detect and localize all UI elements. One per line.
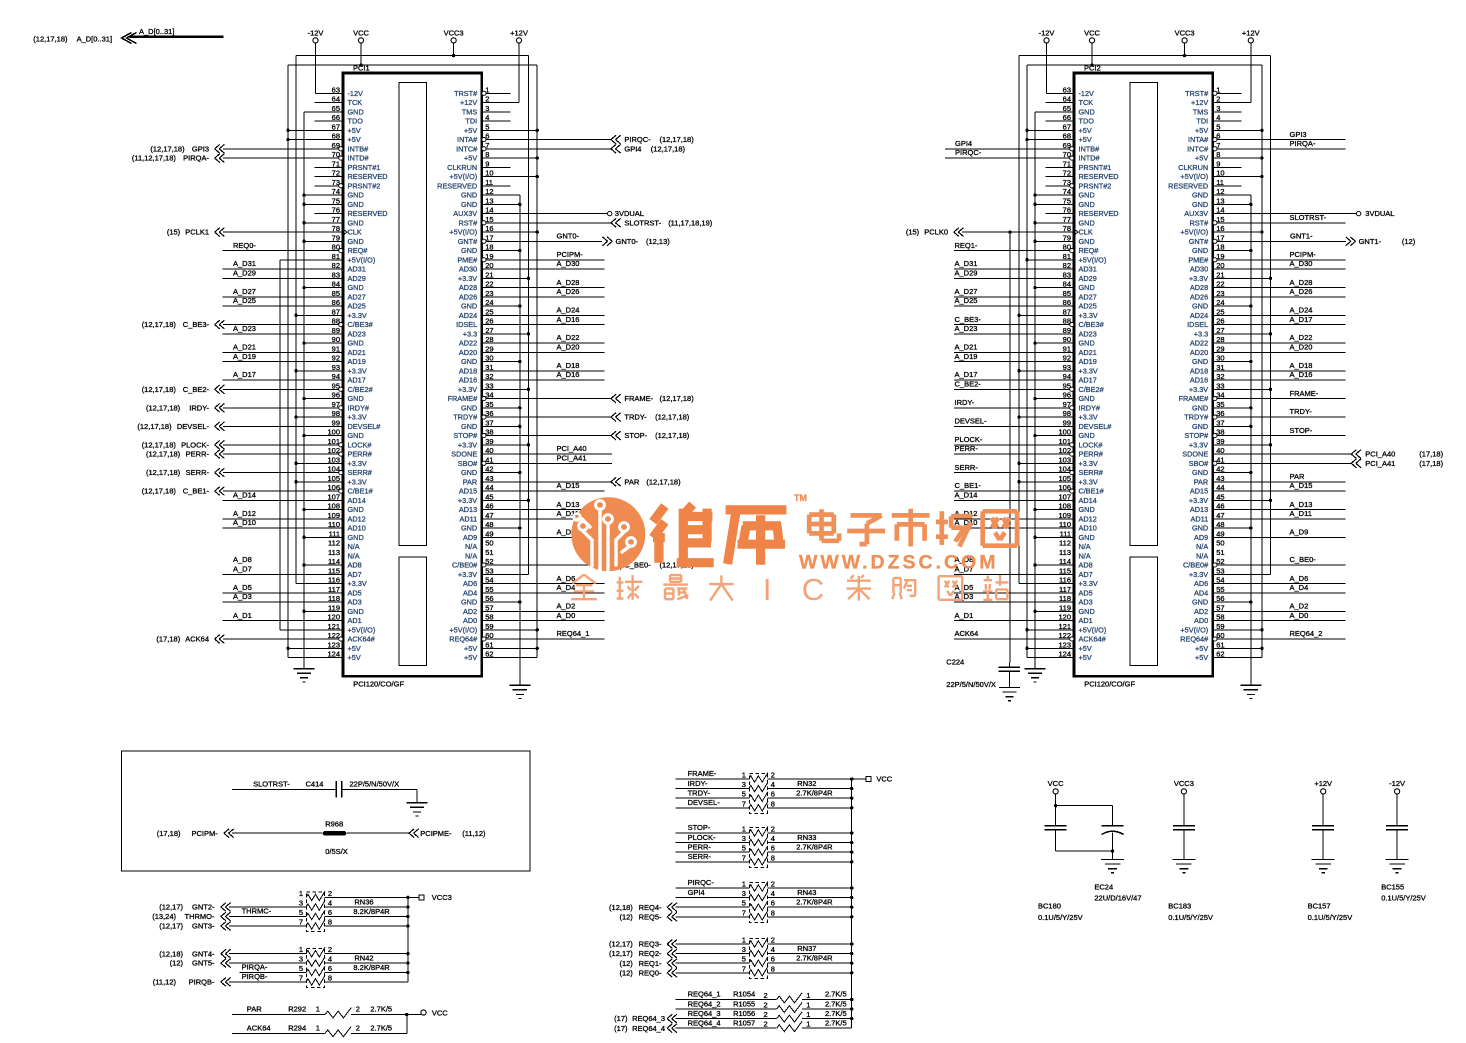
svg-text:(11,12): (11,12): [153, 978, 177, 987]
svg-text:TDO: TDO: [1079, 117, 1095, 126]
svg-text:AD1: AD1: [348, 616, 362, 625]
svg-text:C/BE1#: C/BE1#: [1079, 487, 1105, 496]
svg-text:+5V(I/O): +5V(I/O): [449, 625, 477, 634]
svg-text:AD17: AD17: [348, 376, 366, 385]
svg-text:A_D14: A_D14: [233, 491, 256, 500]
svg-text:113: 113: [1059, 548, 1071, 557]
svg-text:N/A: N/A: [348, 551, 360, 560]
svg-text:TCK: TCK: [1079, 98, 1094, 107]
svg-text:+3.3V: +3.3V: [348, 579, 367, 588]
svg-text:+5V: +5V: [1195, 126, 1208, 135]
svg-text:R1054: R1054: [733, 990, 755, 999]
svg-text:A_D28: A_D28: [1290, 278, 1313, 287]
svg-text:GPI4: GPI4: [688, 888, 705, 897]
svg-text:GND: GND: [1079, 200, 1095, 209]
svg-text:1: 1: [299, 945, 303, 954]
svg-text:A_D30: A_D30: [1290, 259, 1313, 268]
svg-text:GND: GND: [1192, 191, 1208, 200]
svg-text:GNT1-: GNT1-: [1290, 232, 1313, 241]
svg-text:CLKRUN: CLKRUN: [447, 163, 477, 172]
svg-text:AD27: AD27: [348, 292, 366, 301]
svg-text:A_D0: A_D0: [557, 611, 576, 620]
svg-text:+12V: +12V: [1242, 28, 1260, 37]
svg-text:8.2K/8P4R: 8.2K/8P4R: [353, 963, 390, 972]
svg-text:AD12: AD12: [1079, 514, 1097, 523]
svg-text:PCI_A40: PCI_A40: [1365, 450, 1395, 459]
svg-text:REQ3-: REQ3-: [639, 940, 662, 949]
svg-text:REQ5-: REQ5-: [639, 912, 662, 921]
svg-text:50: 50: [1216, 539, 1224, 548]
svg-text:GND: GND: [348, 339, 364, 348]
svg-text:A_D20: A_D20: [1290, 343, 1313, 352]
svg-text:+5V: +5V: [348, 126, 361, 135]
svg-text:A_D22: A_D22: [557, 333, 580, 342]
svg-text:ACK64#: ACK64#: [1079, 635, 1107, 644]
svg-text:INTC#: INTC#: [1187, 144, 1209, 153]
svg-text:(12,17): (12,17): [159, 903, 183, 912]
svg-text:REQ4-: REQ4-: [639, 903, 662, 912]
svg-text:AD30: AD30: [1190, 265, 1208, 274]
svg-text:SBO#: SBO#: [458, 459, 478, 468]
svg-text:TCK: TCK: [348, 98, 363, 107]
svg-text:GND: GND: [1192, 468, 1208, 477]
svg-text:GND: GND: [1192, 302, 1208, 311]
svg-text:TRDY-: TRDY-: [688, 788, 711, 797]
svg-text:BC155: BC155: [1381, 882, 1404, 891]
svg-text:2: 2: [328, 945, 332, 954]
svg-text:2: 2: [1216, 95, 1220, 104]
svg-text:RST#: RST#: [1190, 218, 1210, 227]
svg-text:3: 3: [742, 889, 746, 898]
svg-text:0.1U/5/Y/25V: 0.1U/5/Y/25V: [1038, 913, 1083, 922]
svg-text:PERR#: PERR#: [1079, 450, 1104, 459]
svg-text:AD28: AD28: [1190, 283, 1208, 292]
svg-text:DEVSEL-: DEVSEL-: [177, 422, 210, 431]
svg-text:2: 2: [356, 1005, 360, 1014]
svg-text:A_D19: A_D19: [955, 352, 978, 361]
svg-text:REQ#: REQ#: [348, 246, 369, 255]
svg-text:PAR: PAR: [1290, 472, 1305, 481]
svg-text:(12,17): (12,17): [609, 940, 633, 949]
svg-text:RESERVED: RESERVED: [1079, 209, 1119, 218]
svg-text:A_D20: A_D20: [557, 343, 580, 352]
svg-text:FRAME-: FRAME-: [688, 769, 717, 778]
svg-text:GND: GND: [348, 533, 364, 542]
svg-text:1: 1: [316, 1024, 320, 1033]
svg-text:(17,18): (17,18): [1419, 459, 1443, 468]
svg-text:AD29: AD29: [1079, 274, 1097, 283]
svg-text:(11,12): (11,12): [462, 829, 486, 838]
svg-text:7: 7: [742, 908, 746, 917]
svg-text:2.7K/8P4R: 2.7K/8P4R: [796, 954, 833, 963]
svg-text:A_D23: A_D23: [955, 324, 978, 333]
svg-text:PCI_A41: PCI_A41: [1365, 459, 1395, 468]
svg-text:AD23: AD23: [348, 329, 366, 338]
svg-text:2: 2: [764, 1001, 768, 1010]
svg-text:(15): (15): [167, 228, 181, 237]
svg-text:+3.3V: +3.3V: [1189, 570, 1208, 579]
svg-text:1: 1: [806, 1020, 810, 1029]
svg-text:A_D15: A_D15: [1290, 481, 1313, 490]
svg-text:WWW.DZSC.COM: WWW.DZSC.COM: [799, 552, 999, 574]
svg-text:PCI2: PCI2: [1084, 63, 1101, 72]
svg-text:GND: GND: [1079, 191, 1095, 200]
svg-text:AUX3V: AUX3V: [1184, 209, 1208, 218]
svg-text:1: 1: [299, 889, 303, 898]
svg-text:AD27: AD27: [1079, 292, 1097, 301]
svg-text:4: 4: [771, 889, 775, 898]
svg-text:6: 6: [328, 964, 332, 973]
svg-text:BC157: BC157: [1308, 902, 1331, 911]
svg-text:AD11: AD11: [459, 514, 477, 523]
svg-text:GND: GND: [348, 237, 364, 246]
svg-text:1: 1: [806, 1010, 810, 1019]
svg-text:PERR-: PERR-: [186, 450, 210, 459]
svg-text:2: 2: [771, 771, 775, 780]
svg-text:A_D[0..31]: A_D[0..31]: [139, 27, 174, 36]
svg-text:8: 8: [771, 853, 775, 862]
svg-text:+5V: +5V: [348, 644, 361, 653]
svg-text:TMS: TMS: [1193, 107, 1209, 116]
svg-text:(17): (17): [614, 1024, 628, 1033]
svg-text:(12): (12): [619, 912, 633, 921]
svg-text:1: 1: [806, 1001, 810, 1010]
svg-text:FRAME-: FRAME-: [1290, 389, 1319, 398]
svg-text:1: 1: [806, 991, 810, 1000]
svg-text:SERR-: SERR-: [955, 463, 979, 472]
svg-text:RESERVED: RESERVED: [1168, 181, 1208, 190]
svg-text:STOP-: STOP-: [624, 431, 647, 440]
svg-text:PAR: PAR: [247, 1005, 262, 1014]
svg-text:RST#: RST#: [459, 218, 479, 227]
svg-text:AD6: AD6: [463, 579, 477, 588]
svg-text:+5V(I/O): +5V(I/O): [348, 255, 376, 264]
svg-text:R1056: R1056: [733, 1009, 755, 1018]
svg-text:GNT0-: GNT0-: [557, 232, 580, 241]
svg-text:PLOCK-: PLOCK-: [955, 435, 983, 444]
svg-text:REQ64_4: REQ64_4: [688, 1018, 721, 1027]
svg-text:PCI_A41: PCI_A41: [557, 454, 587, 463]
svg-text:GND: GND: [1192, 598, 1208, 607]
svg-text:C414: C414: [306, 780, 324, 789]
svg-text:63: 63: [332, 85, 340, 94]
svg-text:PLOCK-: PLOCK-: [688, 833, 716, 842]
svg-text:50: 50: [485, 539, 493, 548]
svg-text:GND: GND: [461, 422, 477, 431]
svg-text:+3.3V: +3.3V: [1079, 366, 1098, 375]
svg-text:AD1: AD1: [1079, 616, 1093, 625]
svg-text:REQ64#: REQ64#: [1180, 635, 1209, 644]
svg-text:GNT1-: GNT1-: [1359, 237, 1382, 246]
svg-text:SERR-: SERR-: [186, 468, 210, 477]
svg-text:THRMC-: THRMC-: [242, 907, 272, 916]
svg-text:C/BE0#: C/BE0#: [1183, 561, 1209, 570]
svg-text:(12): (12): [1402, 237, 1416, 246]
svg-text:REQ64#: REQ64#: [449, 635, 478, 644]
svg-text:A_D31: A_D31: [955, 259, 978, 268]
svg-text:VCC3: VCC3: [432, 893, 452, 902]
svg-text:REQ2-: REQ2-: [639, 949, 662, 958]
svg-text:REQ1-: REQ1-: [639, 959, 662, 968]
svg-text:(17,18): (17,18): [157, 829, 181, 838]
svg-text:113: 113: [328, 548, 340, 557]
svg-text:GND: GND: [1079, 505, 1095, 514]
svg-text:DEVSEL-: DEVSEL-: [688, 798, 721, 807]
svg-text:PIRQB-: PIRQB-: [242, 972, 268, 981]
svg-text:IRDY-: IRDY-: [688, 779, 708, 788]
svg-text:PCI1: PCI1: [353, 63, 370, 72]
svg-text:GNT#: GNT#: [1189, 237, 1209, 246]
svg-text:+12V: +12V: [1191, 98, 1208, 107]
svg-text:+3.3V: +3.3V: [458, 496, 477, 505]
svg-text:VCC3: VCC3: [1174, 779, 1194, 788]
svg-text:7: 7: [742, 799, 746, 808]
svg-text:7: 7: [742, 964, 746, 973]
svg-text:GNT4-: GNT4-: [192, 949, 215, 958]
svg-text:A_D16: A_D16: [557, 315, 580, 324]
svg-text:A_D25: A_D25: [955, 296, 978, 305]
svg-text:A_D23: A_D23: [233, 324, 256, 333]
svg-text:AUX3V: AUX3V: [453, 209, 477, 218]
svg-text:GPI4: GPI4: [955, 139, 972, 148]
svg-text:0.1U/5/Y/25V: 0.1U/5/Y/25V: [1381, 894, 1426, 903]
svg-text:PCLK1: PCLK1: [185, 228, 209, 237]
svg-text:51: 51: [485, 548, 493, 557]
svg-text:A_D6: A_D6: [557, 574, 576, 583]
svg-text:(12,17,18): (12,17,18): [660, 394, 695, 403]
svg-text:AD22: AD22: [1190, 339, 1208, 348]
svg-text:AD19: AD19: [348, 357, 366, 366]
svg-text:A_D6: A_D6: [1290, 574, 1309, 583]
svg-text:AD7: AD7: [1079, 570, 1093, 579]
svg-text:AD10: AD10: [1079, 524, 1097, 533]
svg-text:INTB#: INTB#: [348, 144, 370, 153]
svg-text:6: 6: [771, 899, 775, 908]
svg-text:GND: GND: [348, 607, 364, 616]
svg-text:AD0: AD0: [463, 616, 477, 625]
svg-text:+5V(I/O): +5V(I/O): [449, 172, 477, 181]
svg-text:R292: R292: [288, 1005, 306, 1014]
svg-text:VCC3: VCC3: [444, 28, 464, 37]
svg-text:PIRQB-: PIRQB-: [189, 978, 215, 987]
svg-text:PCLK0: PCLK0: [924, 228, 948, 237]
svg-text:+5V: +5V: [464, 126, 477, 135]
svg-text:A_D8: A_D8: [233, 555, 252, 564]
svg-text:3VDUAL: 3VDUAL: [1365, 209, 1394, 218]
svg-text:PCI_A40: PCI_A40: [557, 444, 587, 453]
svg-text:+3.3V: +3.3V: [458, 385, 477, 394]
svg-text:TRST#: TRST#: [1185, 89, 1209, 98]
svg-text:(17,18): (17,18): [1419, 450, 1443, 459]
svg-text:A_D18: A_D18: [1290, 361, 1313, 370]
svg-text:A_D22: A_D22: [1290, 333, 1313, 342]
svg-text:C/BE3#: C/BE3#: [348, 320, 374, 329]
svg-text:AD15: AD15: [1190, 487, 1208, 496]
svg-text:+3.3: +3.3: [1194, 329, 1208, 338]
svg-text:A_D26: A_D26: [1290, 287, 1313, 296]
svg-text:GND: GND: [461, 598, 477, 607]
svg-text:R1057: R1057: [733, 1018, 755, 1027]
svg-text:ACK64: ACK64: [955, 629, 979, 638]
svg-text:AD26: AD26: [459, 292, 477, 301]
svg-text:TMS: TMS: [462, 107, 478, 116]
svg-text:1: 1: [742, 936, 746, 945]
svg-text:RESERVED: RESERVED: [348, 172, 388, 181]
svg-text:3: 3: [742, 834, 746, 843]
svg-text:GND: GND: [1079, 237, 1095, 246]
svg-text:AD16: AD16: [459, 376, 477, 385]
svg-text:RN36: RN36: [354, 898, 373, 907]
svg-text:STOP-: STOP-: [1290, 426, 1313, 435]
svg-text:2: 2: [764, 1020, 768, 1029]
svg-text:+3.3V: +3.3V: [1189, 385, 1208, 394]
svg-text:4: 4: [771, 834, 775, 843]
svg-text:PRSNT#1: PRSNT#1: [348, 163, 381, 172]
svg-text:1: 1: [742, 825, 746, 834]
svg-text:A_D31: A_D31: [233, 259, 256, 268]
svg-text:(12,17,18): (12,17,18): [146, 468, 181, 477]
svg-text:+5V: +5V: [464, 653, 477, 662]
svg-text:INTA#: INTA#: [457, 135, 478, 144]
svg-text:GND: GND: [461, 200, 477, 209]
svg-text:A_D14: A_D14: [955, 491, 978, 500]
svg-text:+5V(I/O): +5V(I/O): [348, 625, 376, 634]
svg-text:-12V: -12V: [1039, 28, 1055, 37]
svg-text:N/A: N/A: [465, 551, 477, 560]
svg-text:VCC3: VCC3: [1175, 28, 1195, 37]
svg-text:2: 2: [771, 880, 775, 889]
svg-text:(12,17,18): (12,17,18): [655, 431, 690, 440]
svg-text:TRDY-: TRDY-: [1290, 407, 1313, 416]
svg-text:+5V(I/O): +5V(I/O): [1079, 255, 1107, 264]
svg-text:REQ64_1: REQ64_1: [557, 629, 590, 638]
svg-text:GND: GND: [1079, 283, 1095, 292]
svg-text:REQ64_1: REQ64_1: [688, 990, 721, 999]
svg-text:-12V: -12V: [348, 89, 364, 98]
svg-text:GND: GND: [461, 302, 477, 311]
svg-text:(12): (12): [619, 968, 633, 977]
svg-text:FRAME#: FRAME#: [448, 394, 479, 403]
svg-text:RN43: RN43: [797, 888, 816, 897]
svg-text:PAR: PAR: [463, 477, 477, 486]
svg-text:AD22: AD22: [459, 339, 477, 348]
svg-text:VCC: VCC: [876, 775, 892, 784]
svg-text:DEVSEL#: DEVSEL#: [1079, 422, 1113, 431]
svg-text:TRDY-: TRDY-: [624, 413, 647, 422]
svg-text:8: 8: [328, 973, 332, 982]
svg-text:+5V: +5V: [1195, 154, 1208, 163]
svg-text:TRDY#: TRDY#: [453, 413, 478, 422]
svg-text:IRDY-: IRDY-: [189, 403, 209, 412]
svg-text:+5V(I/O): +5V(I/O): [449, 228, 477, 237]
svg-text:A_D13: A_D13: [1290, 500, 1313, 509]
svg-text:N/A: N/A: [465, 542, 477, 551]
svg-text:A_D7: A_D7: [233, 565, 252, 574]
svg-text:REQ#: REQ#: [1079, 246, 1100, 255]
svg-text:AD19: AD19: [1079, 357, 1097, 366]
svg-text:PERR-: PERR-: [688, 842, 712, 851]
svg-text:+5V: +5V: [464, 154, 477, 163]
svg-text:CLK: CLK: [348, 228, 362, 237]
svg-text:+3.3V: +3.3V: [458, 570, 477, 579]
svg-text:GND: GND: [1192, 422, 1208, 431]
svg-text:(17,18): (17,18): [156, 635, 180, 644]
svg-text:AD24: AD24: [459, 311, 477, 320]
svg-text:A_D18: A_D18: [557, 361, 580, 370]
svg-text:AD9: AD9: [1194, 533, 1208, 542]
svg-text:A_D17: A_D17: [233, 370, 256, 379]
svg-text:8: 8: [328, 918, 332, 927]
svg-text:EC24: EC24: [1094, 882, 1113, 891]
svg-text:ACK64#: ACK64#: [348, 635, 376, 644]
svg-text:(12,17,18): (12,17,18): [146, 403, 181, 412]
svg-text:GND: GND: [348, 283, 364, 292]
svg-text:A_D1: A_D1: [955, 611, 974, 620]
svg-text:6: 6: [771, 790, 775, 799]
svg-text:LOCK#: LOCK#: [348, 440, 373, 449]
svg-text:C_BE2-: C_BE2-: [955, 380, 982, 389]
svg-text:AD9: AD9: [463, 533, 477, 542]
svg-text:VCC: VCC: [353, 28, 369, 37]
svg-text:GND: GND: [1192, 357, 1208, 366]
svg-text:GNT#: GNT#: [458, 237, 478, 246]
svg-text:112: 112: [328, 539, 340, 548]
svg-text:GNT2-: GNT2-: [192, 903, 215, 912]
svg-text:ACK64: ACK64: [247, 1024, 271, 1033]
svg-text:+5V: +5V: [464, 644, 477, 653]
svg-text:PIRQC-: PIRQC-: [955, 148, 982, 157]
svg-text:PRSNT#2: PRSNT#2: [1079, 181, 1112, 190]
svg-text:AD8: AD8: [348, 561, 362, 570]
svg-text:REQ1-: REQ1-: [955, 241, 978, 250]
svg-text:VCC: VCC: [432, 1009, 448, 1018]
svg-text:PIRQC-: PIRQC-: [688, 878, 715, 887]
svg-text:(12,17,18): (12,17,18): [142, 487, 177, 496]
svg-text:R294: R294: [288, 1024, 306, 1033]
svg-text:1: 1: [742, 771, 746, 780]
svg-text:(13,24): (13,24): [152, 912, 176, 921]
svg-text:AD3: AD3: [348, 598, 362, 607]
svg-text:VCC: VCC: [1084, 28, 1100, 37]
svg-text:PCI120/CO/GF: PCI120/CO/GF: [1084, 679, 1135, 688]
svg-text:A_D27: A_D27: [955, 287, 978, 296]
svg-text:PIRQA-: PIRQA-: [1290, 139, 1316, 148]
svg-text:+3.3V: +3.3V: [1079, 477, 1098, 486]
svg-text:IRDY#: IRDY#: [348, 403, 370, 412]
svg-text:+5V: +5V: [348, 135, 361, 144]
svg-text:A_D17: A_D17: [955, 370, 978, 379]
svg-text:AD5: AD5: [348, 588, 362, 597]
svg-text:8: 8: [771, 964, 775, 973]
svg-text:BC180: BC180: [1038, 902, 1061, 911]
svg-text:A_D17: A_D17: [1290, 315, 1313, 324]
svg-text:BC183: BC183: [1168, 902, 1191, 911]
svg-text:A_D25: A_D25: [233, 296, 256, 305]
svg-text:C/BE3#: C/BE3#: [1079, 320, 1105, 329]
svg-text:C_BE2-: C_BE2-: [183, 385, 210, 394]
svg-text:GND: GND: [461, 357, 477, 366]
svg-text:GNT0-: GNT0-: [616, 237, 639, 246]
svg-text:A_D28: A_D28: [557, 278, 580, 287]
svg-text:4: 4: [328, 899, 332, 908]
svg-text:RN42: RN42: [354, 954, 373, 963]
svg-text:(12,17,18): (12,17,18): [646, 477, 681, 486]
svg-text:PIRQA-: PIRQA-: [242, 963, 268, 972]
svg-text:63: 63: [1063, 85, 1071, 94]
svg-text:PME#: PME#: [457, 255, 478, 264]
svg-text:(11,17,18,19): (11,17,18,19): [668, 218, 713, 227]
svg-text:2.7K/5: 2.7K/5: [370, 1005, 392, 1014]
